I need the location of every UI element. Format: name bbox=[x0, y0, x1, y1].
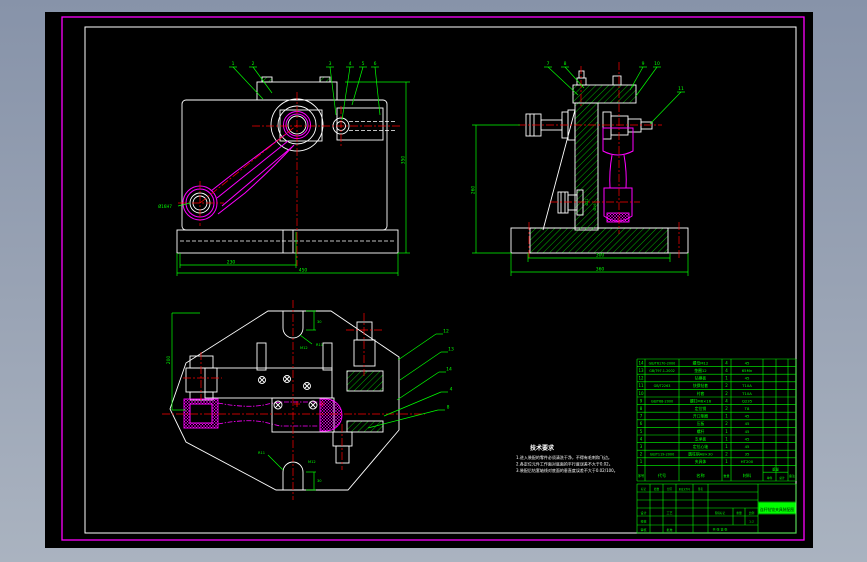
balloon: 7 bbox=[547, 61, 550, 67]
bom-cell: 重量 bbox=[772, 467, 779, 472]
balloon: 9 bbox=[642, 61, 645, 67]
dim-plan-top-r: R11 bbox=[316, 343, 323, 347]
tb-label: 更改文件号 bbox=[679, 487, 691, 491]
bom-cell: 1 bbox=[725, 429, 728, 434]
bom-cell: 1 bbox=[725, 414, 728, 419]
bom-cell: 螺钉M6×16 bbox=[690, 398, 712, 403]
dim-side-bottom-inner: 300 bbox=[596, 253, 605, 259]
tb-role: 批准 bbox=[666, 527, 672, 532]
dim-side-mid-a: Ø22 bbox=[584, 199, 589, 206]
balloon: 2 bbox=[252, 61, 255, 67]
balloon: 5 bbox=[362, 61, 365, 67]
bom-cell: 快换钻套 bbox=[693, 383, 708, 388]
engineering-drawing: 230 450 350 Ø16H7 1 2 3 4 5 6 bbox=[0, 0, 867, 562]
tb-scale: 1:2 bbox=[749, 520, 754, 524]
tb-scale-label: 比例 bbox=[749, 511, 755, 515]
tb-role: 设计 bbox=[640, 510, 646, 515]
bom-cell: 1 bbox=[725, 376, 728, 381]
bom-cell: 5 bbox=[640, 429, 643, 434]
balloon: 12 bbox=[443, 329, 449, 335]
bom-cell: Q235 bbox=[742, 398, 753, 403]
dim-plan-bot-w: 30 bbox=[317, 479, 322, 483]
bom-cell: 7 bbox=[640, 414, 643, 419]
dim-front-bottom-outer: 450 bbox=[299, 268, 308, 274]
bom-cell: 10 bbox=[638, 391, 644, 396]
balloon: 3 bbox=[329, 61, 332, 67]
bom-cell: 35 bbox=[745, 452, 750, 457]
bom-cell: 衬套 bbox=[697, 391, 705, 396]
bom-cell: 4 bbox=[725, 368, 728, 373]
bom-cell: 2 bbox=[725, 452, 728, 457]
bom-cell: T8 bbox=[744, 406, 750, 411]
bom-cell: 8 bbox=[640, 406, 643, 411]
dim-side-left: 260 bbox=[471, 186, 477, 195]
tb-role: 审核 bbox=[640, 527, 646, 532]
balloon: 14 bbox=[446, 367, 452, 373]
bom-cell: GB/T97.1-2002 bbox=[649, 369, 675, 373]
bom-cell: 12 bbox=[638, 376, 644, 381]
bom-cell: 支承板 bbox=[695, 436, 707, 441]
tb-label: 分区 bbox=[667, 487, 673, 491]
dim-plan-bot-r: R11 bbox=[258, 451, 265, 455]
balloon: 13 bbox=[448, 347, 454, 353]
dim-front-small-end: Ø16H7 bbox=[158, 204, 172, 209]
bom-cell: 序号 bbox=[638, 473, 644, 478]
bom-cell: 65Mn bbox=[742, 368, 753, 373]
bom-cell: 45 bbox=[745, 414, 750, 419]
bom-cell: 2 bbox=[640, 452, 643, 457]
balloon: 4 bbox=[450, 387, 453, 393]
bom-cell: 圆柱销A8×30 bbox=[688, 452, 713, 457]
bom-cell: 材料 bbox=[743, 472, 752, 479]
tb-label: 处数 bbox=[654, 487, 660, 491]
bom-cell: HT200 bbox=[741, 459, 754, 464]
bom-cell: 1 bbox=[725, 459, 728, 464]
bom-cell: 4 bbox=[725, 360, 728, 365]
bom-cell: 1 bbox=[725, 444, 728, 449]
bom-cell: 45 bbox=[745, 429, 750, 434]
bom-cell: 夹具体 bbox=[695, 459, 707, 464]
bom-cell: 4 bbox=[725, 398, 728, 403]
tb-stage: 阶段标记 bbox=[715, 511, 726, 515]
bom-cell: 6 bbox=[640, 421, 643, 426]
bom-cell: 定位心轴 bbox=[693, 444, 708, 449]
bom-cell: 钻模板 bbox=[695, 376, 707, 381]
bom-cell: 13 bbox=[638, 368, 644, 373]
drawing-title: 连杆钻铰夹具装配图 bbox=[760, 507, 794, 512]
bom-cell: GB/T68-2000 bbox=[651, 399, 673, 403]
tb-role: 工艺 bbox=[666, 510, 672, 515]
dim-plan-bot-t: M12 bbox=[308, 460, 316, 464]
bom-cell: 9 bbox=[640, 398, 643, 403]
bom-cell: T10A bbox=[741, 383, 752, 388]
bom-cell: GB/T6170-2000 bbox=[649, 361, 676, 365]
balloon: 8 bbox=[564, 61, 567, 67]
tech-req-item: 2.各定位元件工作面对底面的平行度误差不大于0.02。 bbox=[516, 461, 613, 467]
bom-cell: 代号 bbox=[658, 472, 666, 479]
bom-cell: 2 bbox=[725, 406, 728, 411]
bom-cell: 45 bbox=[745, 360, 750, 365]
bom-cell: 2 bbox=[725, 383, 728, 388]
cad-canvas[interactable] bbox=[45, 12, 813, 548]
dim-front-right: 350 bbox=[401, 156, 407, 165]
balloon: 4 bbox=[349, 61, 352, 67]
bom-cell: 2 bbox=[725, 421, 728, 426]
balloon: 11 bbox=[678, 86, 684, 92]
bom-cell: 45 bbox=[745, 421, 750, 426]
bom-cell: 45 bbox=[745, 436, 750, 441]
tb-role: 校核 bbox=[640, 519, 646, 524]
bom-cell: 单件 bbox=[767, 476, 773, 480]
bom-cell: 螺杆 bbox=[697, 429, 705, 434]
bom-cell: 3 bbox=[640, 444, 643, 449]
balloon: 8 bbox=[447, 405, 450, 411]
bom-cell: 11 bbox=[638, 383, 644, 388]
bom-cell: GB/T2263 bbox=[654, 384, 671, 388]
bom-cell: 名称 bbox=[696, 472, 704, 479]
dim-plan-left: 200 bbox=[166, 356, 172, 365]
dim-side-mid-b: Ø16 bbox=[592, 204, 597, 211]
balloon: 10 bbox=[654, 61, 660, 67]
bom-cell: 4 bbox=[640, 436, 643, 441]
bom-cell: 45 bbox=[745, 444, 750, 449]
tb-label: 签名 bbox=[698, 487, 704, 491]
bom-cell: T10A bbox=[741, 391, 752, 396]
dim-front-bottom-inner: 230 bbox=[227, 260, 236, 266]
tech-req-item: 1.进入装配的零件必须清洗干净，不得有毛刺和飞边。 bbox=[516, 454, 612, 460]
tech-req-item: 3.装配后钻套轴线对底面的垂直度误差不大于0.02/100。 bbox=[516, 467, 618, 473]
tb-label: 标记 bbox=[641, 487, 647, 491]
bom-cell: 1 bbox=[640, 459, 643, 464]
balloon: 1 bbox=[232, 61, 235, 67]
bom-cell: 2 bbox=[725, 391, 728, 396]
tb-weight: 重量 bbox=[736, 511, 742, 515]
bom-cell: GB/T119-2000 bbox=[650, 453, 675, 457]
bom-cell: 开口垫圈 bbox=[693, 414, 708, 419]
bom-cell: 14 bbox=[638, 360, 644, 365]
bom-cell: 45 bbox=[745, 376, 750, 381]
bom-cell: 垫圈12 bbox=[694, 368, 707, 373]
bom-cell: 总计 bbox=[779, 476, 785, 480]
bom-cell: 备注 bbox=[789, 473, 795, 478]
dim-plan-top-t: M12 bbox=[300, 346, 308, 350]
bom-cell: 螺母M12 bbox=[693, 360, 709, 365]
bom-cell: 数量 bbox=[723, 473, 729, 478]
bom-cell: 1 bbox=[725, 436, 728, 441]
dim-plan-top-w: 30 bbox=[317, 320, 322, 324]
bom-cell: 定位销 bbox=[695, 406, 707, 411]
tech-req-title: 技术要求 bbox=[530, 444, 555, 452]
cad-viewport: 230 450 350 Ø16H7 1 2 3 4 5 6 bbox=[0, 0, 867, 562]
tb-sheets: 共 张 第 张 bbox=[713, 527, 728, 532]
frame bbox=[45, 12, 813, 548]
dim-side-bottom-outer: 360 bbox=[596, 267, 605, 273]
balloon: 6 bbox=[374, 61, 377, 67]
bom-cell: 压板 bbox=[697, 421, 705, 426]
